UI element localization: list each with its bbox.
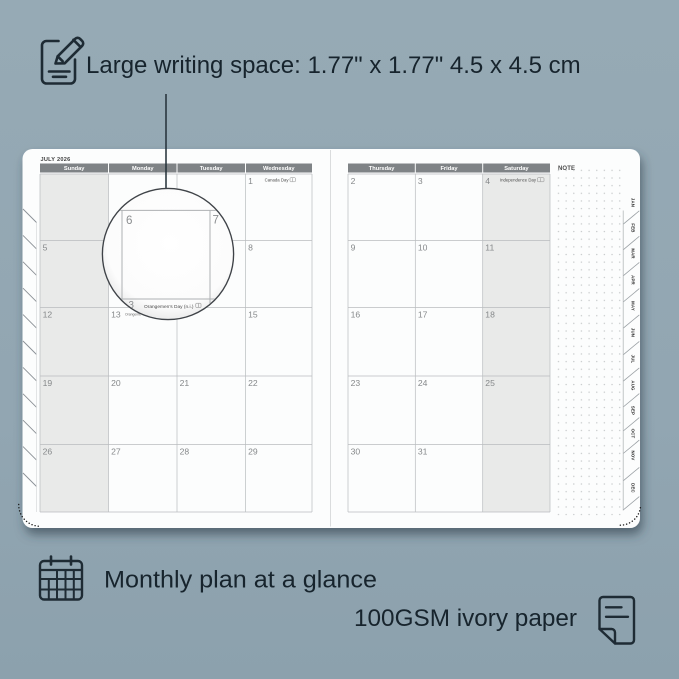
svg-text:18: 18 xyxy=(485,309,495,319)
svg-text:15: 15 xyxy=(248,309,258,319)
svg-text:JULY 2026: JULY 2026 xyxy=(41,157,71,163)
svg-text:19: 19 xyxy=(43,378,53,388)
svg-text:Monthly plan at a glance: Monthly plan at a glance xyxy=(104,567,377,594)
svg-text:FEB: FEB xyxy=(630,223,635,232)
svg-text:13: 13 xyxy=(111,309,121,319)
svg-text:Friday: Friday xyxy=(440,166,458,172)
svg-text:MAR: MAR xyxy=(630,248,635,259)
svg-text:27: 27 xyxy=(111,446,121,456)
svg-text:Orangemen’s Day (n.i.): Orangemen’s Day (n.i.) xyxy=(144,304,194,310)
svg-text:26: 26 xyxy=(43,446,53,456)
svg-text:Wednesday: Wednesday xyxy=(263,166,295,172)
svg-text:Tuesday: Tuesday xyxy=(200,166,223,172)
svg-text:Monday: Monday xyxy=(132,166,154,172)
svg-text:AUG: AUG xyxy=(630,380,635,391)
svg-text:SEP: SEP xyxy=(630,406,635,415)
svg-text:5: 5 xyxy=(43,242,48,252)
svg-text:25: 25 xyxy=(485,378,495,388)
svg-text:Saturday: Saturday xyxy=(504,166,529,172)
svg-text:Large writing space: 1.77" x 1: Large writing space: 1.77" x 1.77" 4.5 x… xyxy=(86,52,581,79)
svg-text:20: 20 xyxy=(111,378,121,388)
svg-text:12: 12 xyxy=(43,309,53,319)
svg-text:8: 8 xyxy=(248,242,253,252)
svg-text:DEC: DEC xyxy=(630,483,635,493)
svg-text:JUL: JUL xyxy=(630,355,635,364)
svg-text:3: 3 xyxy=(418,176,423,186)
svg-text:1: 1 xyxy=(248,176,253,186)
svg-text:16: 16 xyxy=(351,309,361,319)
svg-text:Sunday: Sunday xyxy=(64,166,85,172)
svg-text:11: 11 xyxy=(485,242,494,252)
svg-text:29: 29 xyxy=(248,446,258,456)
svg-text:24: 24 xyxy=(418,378,428,388)
svg-text:22: 22 xyxy=(248,378,258,388)
svg-text:Thursday: Thursday xyxy=(369,166,395,172)
svg-text:10: 10 xyxy=(418,242,428,252)
svg-text:6: 6 xyxy=(126,214,132,227)
svg-text:Canada Day: Canada Day xyxy=(265,178,290,183)
svg-text:2: 2 xyxy=(351,176,356,186)
svg-text:17: 17 xyxy=(418,309,428,319)
svg-text:4: 4 xyxy=(485,176,490,186)
svg-text:28: 28 xyxy=(180,446,190,456)
svg-text:9: 9 xyxy=(351,242,356,252)
svg-text:APR: APR xyxy=(630,275,635,285)
svg-text:NOV: NOV xyxy=(630,451,635,461)
svg-text:MAY: MAY xyxy=(630,301,635,311)
svg-text:23: 23 xyxy=(351,378,361,388)
svg-text:21: 21 xyxy=(180,378,190,388)
svg-text:JAN: JAN xyxy=(630,198,635,207)
svg-text:JUN: JUN xyxy=(630,328,635,337)
svg-text:OCT: OCT xyxy=(630,429,635,439)
svg-text:7: 7 xyxy=(213,214,219,227)
svg-text:31: 31 xyxy=(418,446,428,456)
svg-text:100GSM ivory paper: 100GSM ivory paper xyxy=(354,605,577,632)
svg-text:Independence Day: Independence Day xyxy=(500,178,537,183)
svg-text:30: 30 xyxy=(351,446,361,456)
